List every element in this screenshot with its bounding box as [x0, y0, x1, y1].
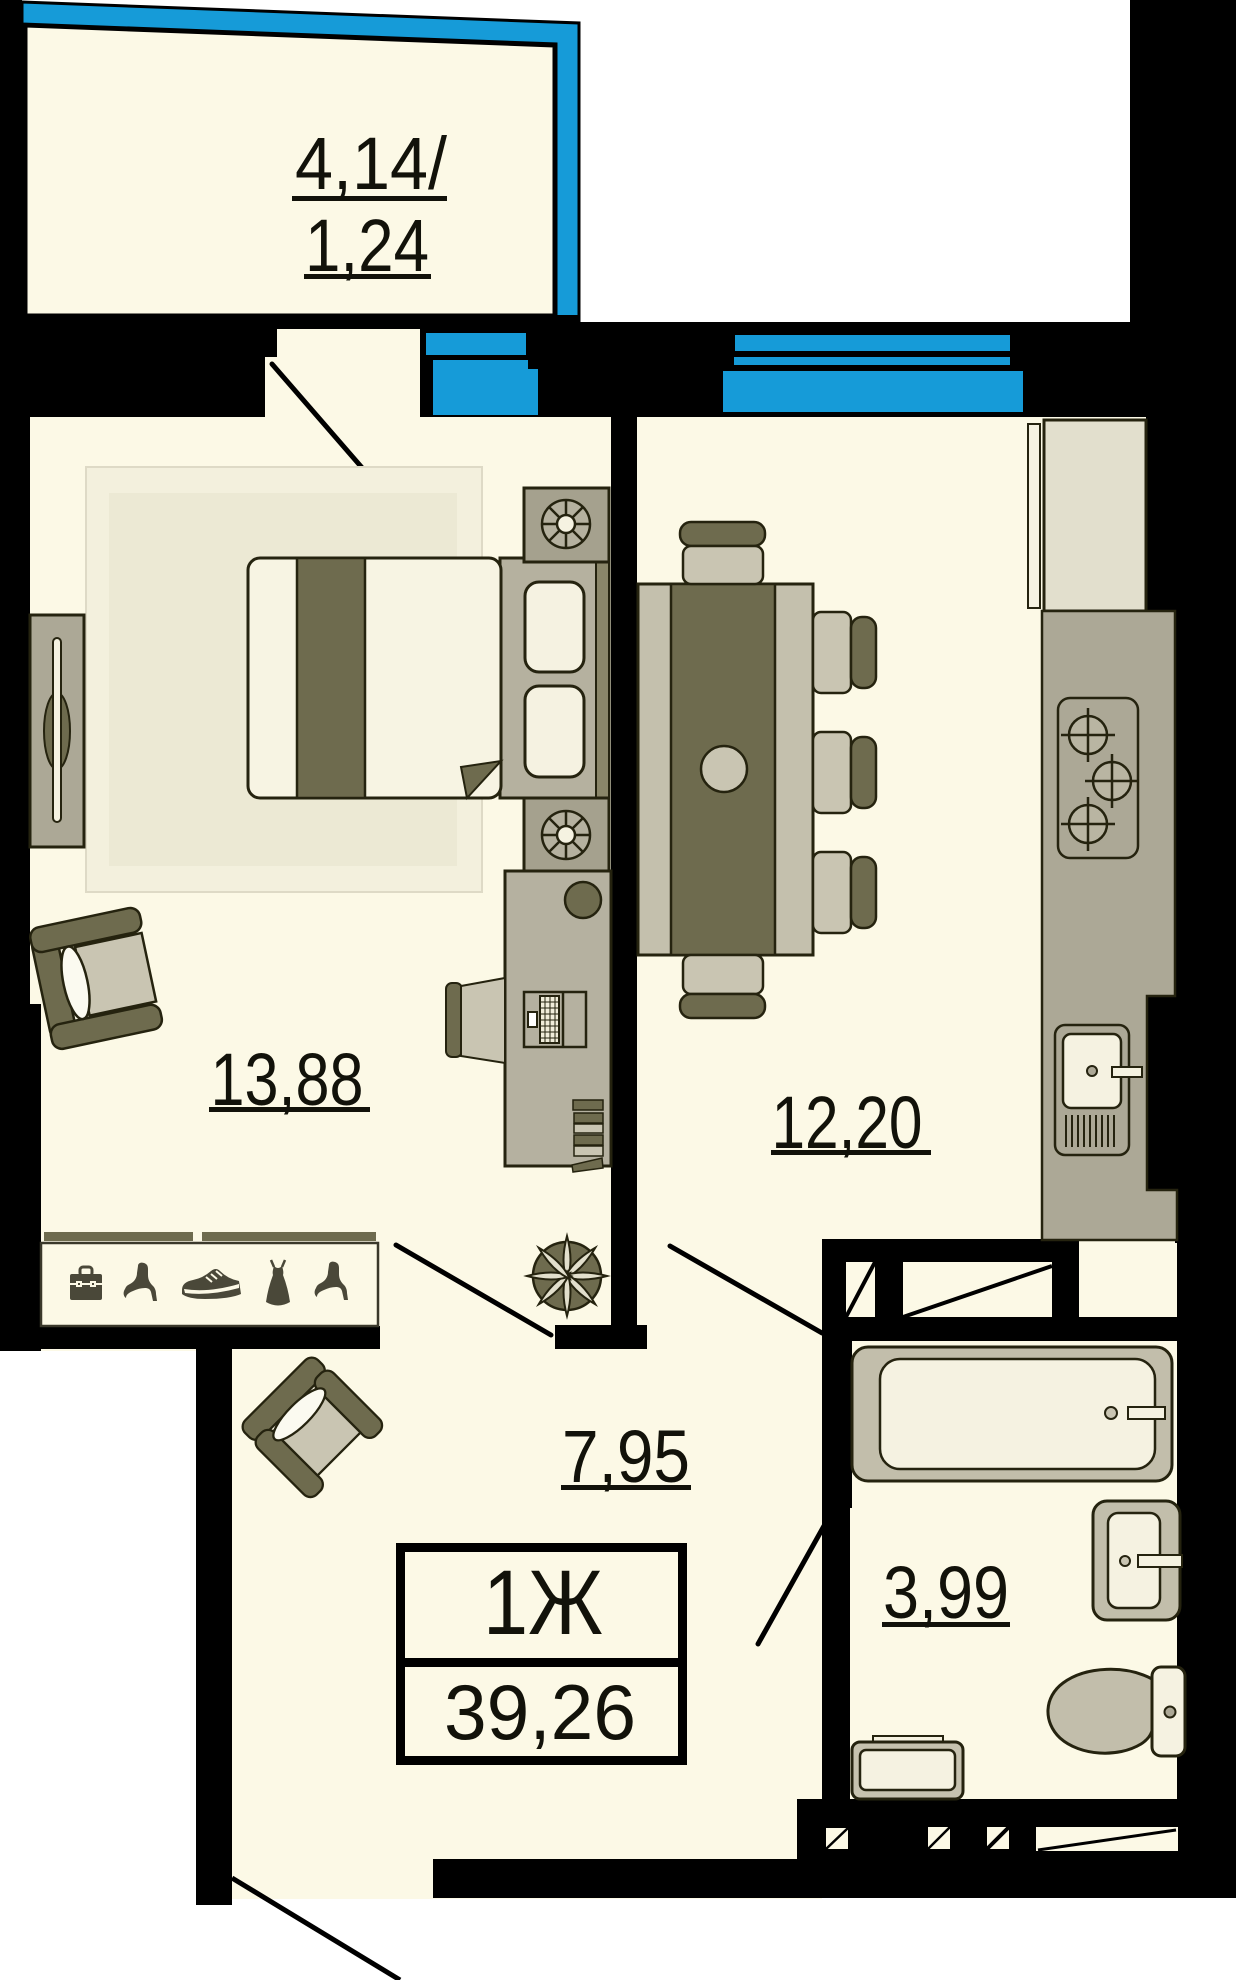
svg-text:4,14/: 4,14/: [295, 122, 447, 205]
svg-text:3,99: 3,99: [883, 1551, 1009, 1634]
svg-text:1Ж: 1Ж: [483, 1552, 603, 1654]
svg-text:39,26: 39,26: [444, 1668, 636, 1756]
